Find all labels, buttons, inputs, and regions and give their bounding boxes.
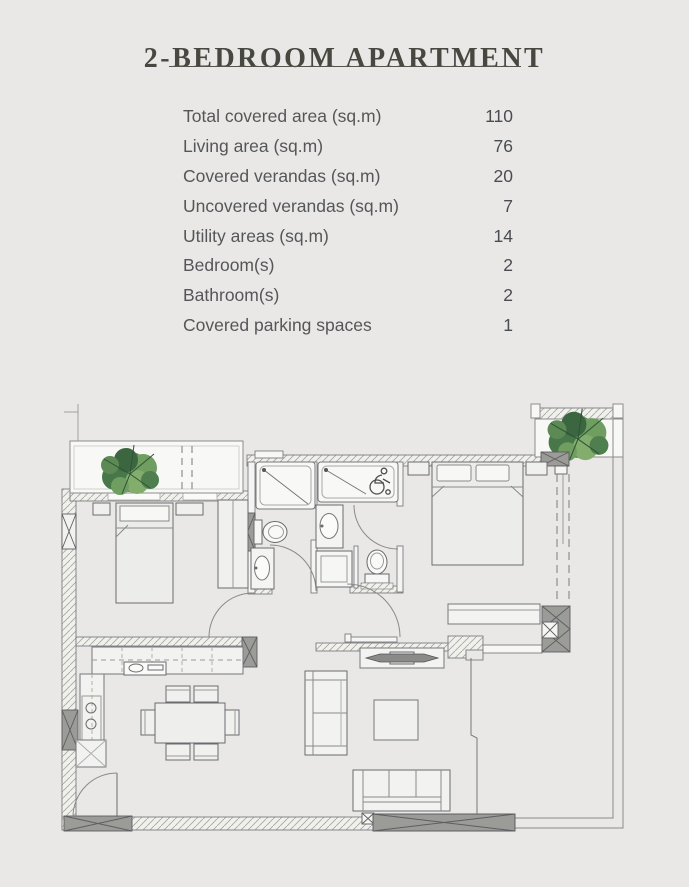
- kitchen-counter: [76, 647, 243, 767]
- spec-label: Total covered area (sq.m): [183, 106, 381, 127]
- bedroom-2-console: [448, 604, 540, 624]
- spec-value: 14: [473, 226, 513, 247]
- coffee-table: [374, 700, 418, 740]
- bathroom-2-sink: [316, 505, 343, 548]
- title-underline: [169, 66, 521, 67]
- veranda: [471, 410, 623, 828]
- spec-value: 76: [473, 136, 513, 157]
- spec-label: Living area (sq.m): [183, 136, 323, 157]
- structural-columns: [62, 452, 570, 831]
- dining-table: [141, 686, 239, 760]
- accessible-shower-icon: [370, 468, 390, 494]
- plant-icon: [101, 445, 159, 495]
- spec-value: 1: [473, 315, 513, 336]
- planter-balcony-right: [531, 404, 623, 461]
- entrance-door: [73, 773, 117, 817]
- wardrobe: [218, 500, 248, 588]
- spec-row: Living area (sq.m) 76: [183, 132, 513, 162]
- bathroom-1-sink: [251, 548, 274, 589]
- spec-value: 2: [473, 285, 513, 306]
- bedroom-1-bed: [93, 503, 203, 603]
- spec-row: Covered verandas (sq.m) 20: [183, 162, 513, 192]
- page-title: 2-BEDROOM APARTMENT: [0, 43, 689, 75]
- spec-row: Covered parking spaces 1: [183, 311, 513, 341]
- bedroom-2-bed: [408, 462, 547, 565]
- bedroom-1-door-arc: [209, 593, 253, 637]
- lounge-sofa: [353, 770, 450, 811]
- spec-label: Uncovered verandas (sq.m): [183, 196, 399, 217]
- spec-label: Covered parking spaces: [183, 315, 372, 336]
- sofa: [305, 671, 347, 755]
- spec-label: Covered verandas (sq.m): [183, 166, 380, 187]
- kitchen-tall-unit: [76, 740, 106, 767]
- spec-value: 7: [473, 196, 513, 217]
- spec-label: Bedroom(s): [183, 255, 274, 276]
- hallway-door-arc: [347, 584, 400, 637]
- planter-balcony-left: [70, 441, 243, 495]
- exterior-walls: [62, 404, 545, 830]
- bathroom-1-door-arc: [270, 545, 316, 591]
- page: { "header": { "title": "2-BEDROOM APARTM…: [0, 0, 689, 882]
- kitchen-sink: [124, 662, 166, 675]
- bathroom-1-shower: [256, 462, 315, 509]
- spec-table: Total covered area (sq.m) 110 Living are…: [183, 102, 513, 340]
- tv-icon: [366, 654, 438, 662]
- interior-walls: [248, 462, 403, 642]
- spec-row: Uncovered verandas (sq.m) 7: [183, 191, 513, 221]
- spec-value: 2: [473, 255, 513, 276]
- spec-row: Total covered area (sq.m) 110: [183, 102, 513, 132]
- spec-value: 110: [473, 106, 513, 127]
- plant-icon: [548, 409, 609, 462]
- sliding-door: [362, 474, 569, 831]
- spec-value: 20: [473, 166, 513, 187]
- bathroom-2-door-arc: [354, 505, 398, 549]
- washing-machine: [316, 551, 352, 587]
- bathroom-1-toilet: [254, 520, 287, 544]
- spec-row: Bathroom(s) 2: [183, 281, 513, 311]
- spec-label: Utility areas (sq.m): [183, 226, 329, 247]
- spec-row: Utility areas (sq.m) 14: [183, 221, 513, 251]
- bathroom-2-shower: [318, 462, 398, 502]
- spec-row: Bedroom(s) 2: [183, 251, 513, 281]
- tv-console: [360, 648, 444, 668]
- bathroom-2-toilet: [361, 550, 393, 589]
- spec-label: Bathroom(s): [183, 285, 279, 306]
